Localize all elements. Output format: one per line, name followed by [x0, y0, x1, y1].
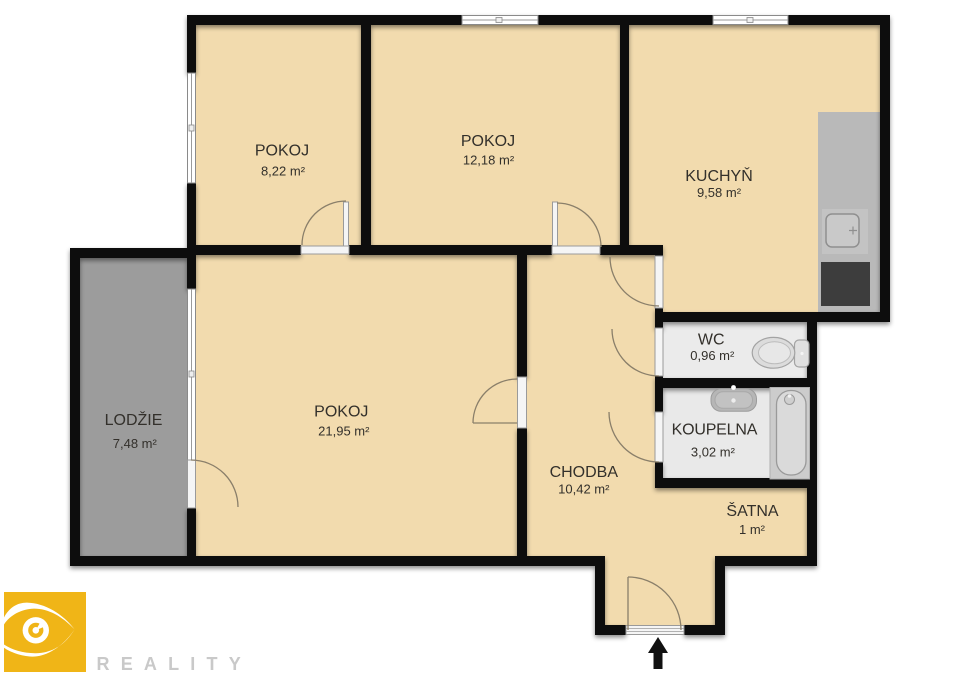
svg-text:12,18 m²: 12,18 m² — [463, 153, 515, 168]
svg-text:10,42 m²: 10,42 m² — [558, 482, 610, 497]
svg-text:1 m²: 1 m² — [739, 522, 766, 537]
svg-text:KOUPELNA: KOUPELNA — [672, 421, 758, 438]
svg-text:POKOJ: POKOJ — [255, 143, 309, 160]
svg-text:21,95 m²: 21,95 m² — [318, 424, 370, 439]
svg-text:KUCHYŇ: KUCHYŇ — [685, 166, 753, 185]
svg-text:ŠATNA: ŠATNA — [726, 501, 778, 520]
svg-text:REALITY: REALITY — [97, 654, 252, 674]
svg-text:CHODBA: CHODBA — [550, 464, 619, 481]
svg-text:POKOJ: POKOJ — [314, 404, 368, 421]
svg-text:3,02 m²: 3,02 m² — [691, 445, 736, 460]
svg-text:0,96 m²: 0,96 m² — [690, 348, 735, 363]
svg-text:7,48 m²: 7,48 m² — [113, 436, 158, 451]
svg-text:LODŽIE: LODŽIE — [105, 410, 163, 429]
svg-text:WC: WC — [698, 332, 725, 349]
svg-text:9,58 m²: 9,58 m² — [697, 185, 742, 200]
svg-text:8,22 m²: 8,22 m² — [261, 164, 306, 179]
svg-text:POKOJ: POKOJ — [461, 133, 515, 150]
